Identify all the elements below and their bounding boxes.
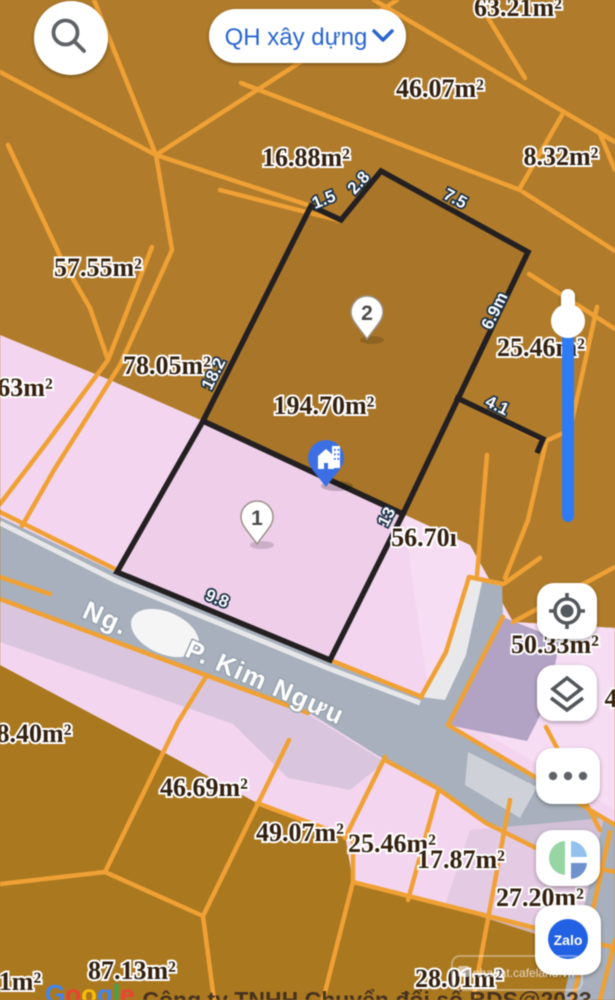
svg-text:194.70m²: 194.70m²	[274, 391, 375, 420]
svg-text:57.55m²: 57.55m²	[54, 253, 142, 282]
svg-text:2: 2	[361, 302, 373, 325]
svg-text:46.69m²: 46.69m²	[160, 773, 248, 802]
svg-text:78.05m²: 78.05m²	[123, 351, 211, 380]
svg-text:nhadat.cafeland.vn: nhadat.cafeland.vn	[473, 966, 574, 980]
svg-text:4: 4	[605, 684, 615, 713]
svg-text:63m²: 63m²	[0, 373, 53, 402]
svg-text:Zalo: Zalo	[554, 932, 583, 948]
svg-text:16.88m²: 16.88m²	[262, 143, 350, 172]
svg-text:Google: Google	[45, 979, 135, 1000]
svg-text:56.70ı: 56.70ı	[391, 523, 457, 552]
svg-text:8.32m²: 8.32m²	[524, 142, 599, 171]
svg-text:Công ty TNHH Chuyển đổi số BDS: Công ty TNHH Chuyển đổi số BDS@2023	[142, 987, 591, 1000]
svg-text:8.40m²: 8.40m²	[0, 719, 72, 748]
svg-text:63.21m²: 63.21m²	[474, 0, 562, 22]
svg-text:49.07m²: 49.07m²	[256, 818, 344, 847]
svg-text:17.87m²: 17.87m²	[417, 845, 505, 874]
svg-text:1: 1	[251, 507, 263, 530]
svg-text:QH xây dựng: QH xây dựng	[225, 24, 368, 51]
svg-text:1m²: 1m²	[0, 967, 41, 996]
svg-text:46.07m²: 46.07m²	[396, 74, 484, 103]
